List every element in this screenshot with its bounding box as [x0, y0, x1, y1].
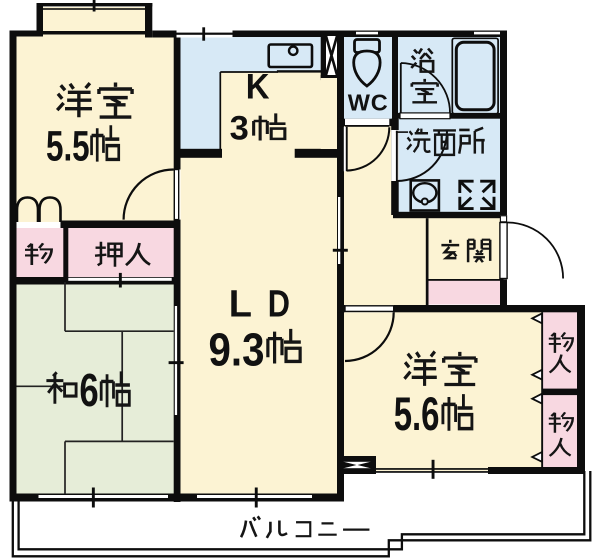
- svg-text:9.3: 9.3: [209, 325, 265, 376]
- svg-text:5.5: 5.5: [46, 122, 90, 170]
- svg-text:5.6: 5.6: [394, 387, 440, 440]
- svg-text:D: D: [268, 284, 290, 326]
- svg-text:L: L: [229, 284, 252, 326]
- svg-text:3: 3: [230, 109, 249, 147]
- svg-text:6: 6: [79, 364, 98, 416]
- svg-text:K: K: [246, 67, 270, 106]
- svg-text:WC: WC: [348, 89, 389, 115]
